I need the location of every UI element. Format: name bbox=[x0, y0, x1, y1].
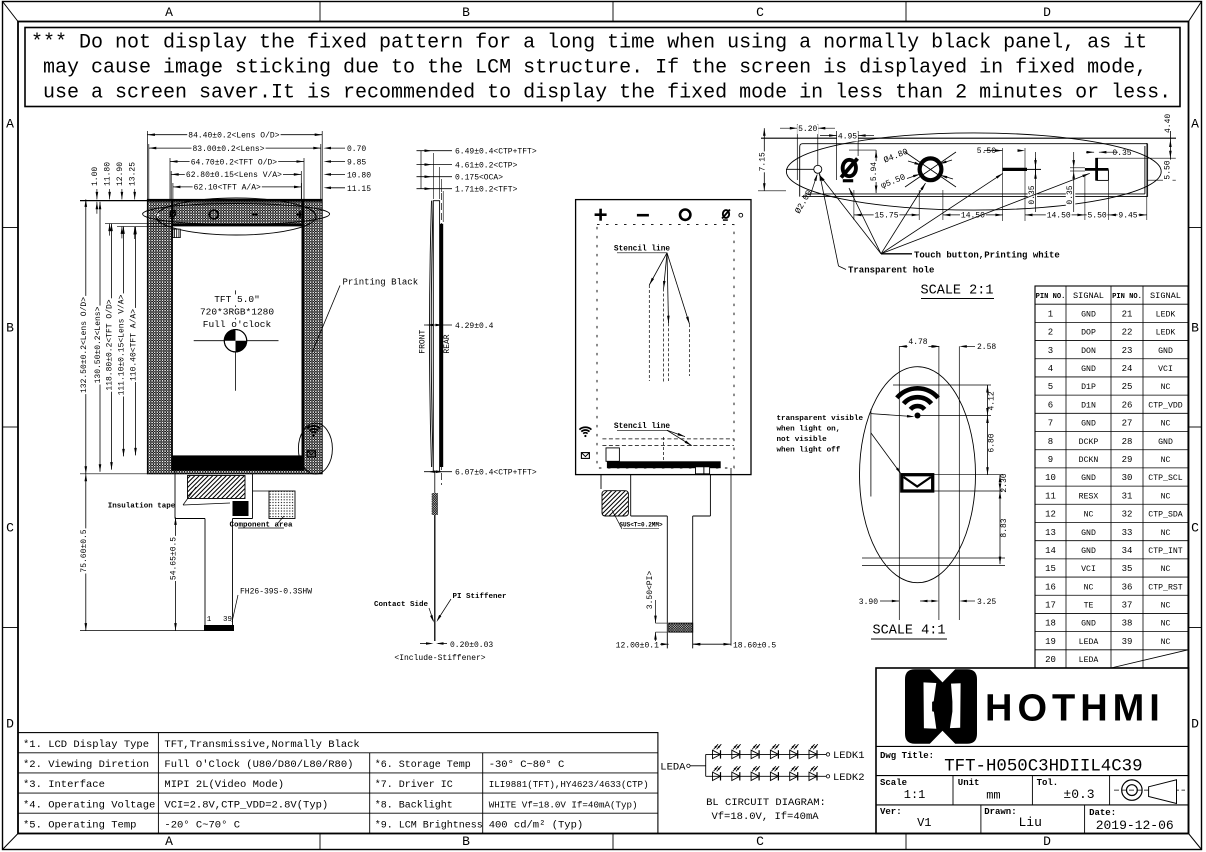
svg-text:DOP: DOP bbox=[1081, 329, 1096, 338]
svg-text:4.29±0.4: 4.29±0.4 bbox=[455, 322, 494, 331]
svg-text:B: B bbox=[6, 321, 14, 336]
svg-text:10: 10 bbox=[1045, 473, 1056, 483]
svg-text:14.50: 14.50 bbox=[961, 212, 985, 221]
svg-text:D: D bbox=[1043, 834, 1051, 849]
svg-text:C: C bbox=[1191, 521, 1199, 536]
svg-text:*6. Storage Temp: *6. Storage Temp bbox=[375, 759, 471, 771]
svg-text:NC: NC bbox=[1161, 602, 1171, 611]
svg-text:NC: NC bbox=[1084, 511, 1094, 520]
svg-text:GND: GND bbox=[1081, 420, 1096, 429]
svg-text:22: 22 bbox=[1122, 328, 1133, 338]
svg-text:D: D bbox=[1191, 717, 1199, 732]
svg-text:4.95: 4.95 bbox=[838, 132, 857, 141]
svg-text:A: A bbox=[165, 5, 173, 20]
svg-text:35: 35 bbox=[1122, 564, 1133, 574]
svg-text:LEDK1: LEDK1 bbox=[833, 750, 865, 762]
svg-text:GND: GND bbox=[1158, 438, 1173, 447]
svg-text:LEDA: LEDA bbox=[660, 762, 686, 774]
svg-text:LEDK: LEDK bbox=[1156, 310, 1176, 319]
svg-text:transparent visible: transparent visible bbox=[777, 415, 864, 423]
svg-text:83.00±0.2<Lens>: 83.00±0.2<Lens> bbox=[192, 145, 264, 154]
svg-text:26: 26 bbox=[1122, 400, 1133, 410]
svg-text:Ver:: Ver: bbox=[880, 807, 902, 817]
svg-text:RESX: RESX bbox=[1079, 492, 1099, 501]
svg-text:Full O'Clock (U80/D80/L80/R80): Full O'Clock (U80/D80/L80/R80) bbox=[164, 759, 353, 771]
svg-text:LEDA: LEDA bbox=[1079, 656, 1099, 665]
svg-text:B: B bbox=[462, 5, 470, 20]
svg-text:4.12: 4.12 bbox=[988, 391, 997, 410]
svg-text:9.45: 9.45 bbox=[1118, 212, 1137, 221]
svg-text:15: 15 bbox=[1045, 564, 1056, 574]
svg-text:*** Do not display the fixed p: *** Do not display the fixed pattern for… bbox=[31, 32, 1147, 55]
svg-text:Insulation tape: Insulation tape bbox=[108, 503, 176, 511]
svg-text:Vf=18.0V, If=40mA: Vf=18.0V, If=40mA bbox=[711, 811, 819, 823]
svg-text:SCALE 2:1: SCALE 2:1 bbox=[921, 284, 994, 299]
svg-text:may cause image sticking due t: may cause image sticking due to the LCM … bbox=[43, 57, 1147, 80]
svg-text:118.80±0.2<TFT O/D>: 118.80±0.2<TFT O/D> bbox=[106, 299, 115, 390]
svg-text:Stencil line: Stencil line bbox=[614, 246, 670, 254]
svg-text:12.00±0.1: 12.00±0.1 bbox=[616, 642, 659, 651]
svg-text:0.20±0.03: 0.20±0.03 bbox=[450, 641, 493, 650]
svg-text:Liu: Liu bbox=[1018, 815, 1041, 830]
svg-text:54.65±0.5: 54.65±0.5 bbox=[170, 537, 179, 580]
svg-text:5.20: 5.20 bbox=[798, 125, 817, 134]
svg-text:20: 20 bbox=[1045, 655, 1056, 665]
svg-text:14.50: 14.50 bbox=[1047, 212, 1071, 221]
svg-text:30: 30 bbox=[1122, 473, 1133, 483]
svg-text:HOTHMI: HOTHMI bbox=[985, 688, 1165, 730]
svg-text:62.10<TFT A/A>: 62.10<TFT A/A> bbox=[194, 184, 261, 193]
svg-text:0.175<OCA>: 0.175<OCA> bbox=[455, 174, 503, 183]
svg-text:1: 1 bbox=[1048, 309, 1053, 319]
svg-text:8: 8 bbox=[1048, 437, 1053, 447]
svg-text:*2. Viewing Diretion: *2. Viewing Diretion bbox=[23, 759, 149, 771]
svg-text:16: 16 bbox=[1045, 582, 1056, 592]
svg-text:13.25: 13.25 bbox=[129, 162, 138, 186]
svg-text:LEDA: LEDA bbox=[1079, 638, 1099, 647]
svg-text:21: 21 bbox=[1122, 309, 1133, 319]
svg-text:ILI9881(TFT),HY4623/4633(CTP): ILI9881(TFT),HY4623/4633(CTP) bbox=[489, 779, 649, 790]
svg-text:Tol.: Tol. bbox=[1037, 778, 1059, 788]
svg-text:not visible: not visible bbox=[777, 436, 828, 444]
svg-text:23: 23 bbox=[1122, 346, 1133, 356]
svg-text:37: 37 bbox=[1122, 601, 1133, 611]
svg-text:24: 24 bbox=[1122, 364, 1133, 374]
svg-text:B: B bbox=[1191, 321, 1199, 336]
svg-text:2.30: 2.30 bbox=[1000, 473, 1009, 492]
svg-text:Date:: Date: bbox=[1089, 808, 1116, 818]
svg-text:GND: GND bbox=[1081, 474, 1096, 483]
svg-text:LEDK: LEDK bbox=[1156, 329, 1176, 338]
svg-text:1.71±0.2<TFT>: 1.71±0.2<TFT> bbox=[455, 186, 518, 195]
svg-text:39: 39 bbox=[223, 616, 232, 624]
svg-text:19: 19 bbox=[1045, 637, 1056, 647]
svg-text:3.50<PI>: 3.50<PI> bbox=[646, 571, 655, 610]
svg-text:GND: GND bbox=[1081, 620, 1096, 629]
svg-text:5.50: 5.50 bbox=[1087, 212, 1106, 221]
svg-text:5.94: 5.94 bbox=[870, 162, 879, 181]
svg-text:Transparent hole: Transparent hole bbox=[848, 266, 934, 276]
svg-text:400 cd/m² (Typ): 400 cd/m² (Typ) bbox=[489, 819, 584, 831]
svg-text:36: 36 bbox=[1122, 582, 1133, 592]
svg-text:4.40: 4.40 bbox=[1164, 114, 1173, 133]
svg-text:84.40±0.2<Lens O/D>: 84.40±0.2<Lens O/D> bbox=[188, 132, 279, 141]
svg-text:NC: NC bbox=[1161, 638, 1171, 647]
svg-text:TFT,Transmissive,Normally Blac: TFT,Transmissive,Normally Black bbox=[164, 739, 359, 751]
svg-text:13: 13 bbox=[1045, 528, 1056, 538]
svg-text:132.50±0.2<Lens O/D>: 132.50±0.2<Lens O/D> bbox=[80, 297, 89, 393]
svg-text:SUS<T=0.2MM>: SUS<T=0.2MM> bbox=[619, 522, 663, 529]
svg-text:CTP_SCL: CTP_SCL bbox=[1148, 474, 1182, 483]
svg-text:2: 2 bbox=[1048, 328, 1053, 338]
svg-text:Scale: Scale bbox=[880, 778, 907, 788]
svg-text:D: D bbox=[1043, 5, 1051, 20]
svg-text:*3. Interface: *3. Interface bbox=[23, 779, 105, 791]
svg-text:1: 1 bbox=[207, 616, 212, 624]
svg-text:5.50: 5.50 bbox=[977, 147, 996, 156]
svg-text:8.83: 8.83 bbox=[1000, 518, 1009, 537]
svg-text:38: 38 bbox=[1122, 619, 1133, 629]
svg-text:CTP_SDA: CTP_SDA bbox=[1148, 511, 1182, 520]
svg-text:75.60±0.5: 75.60±0.5 bbox=[80, 529, 89, 572]
svg-text:32: 32 bbox=[1122, 510, 1133, 520]
svg-text:17: 17 bbox=[1045, 601, 1056, 611]
svg-text:TFT-H050C3HDIIL4C39: TFT-H050C3HDIIL4C39 bbox=[944, 758, 1142, 777]
svg-text:GND: GND bbox=[1081, 529, 1096, 538]
svg-text:Drawn:: Drawn: bbox=[984, 807, 1016, 817]
svg-text:18: 18 bbox=[1045, 619, 1056, 629]
svg-text:C: C bbox=[756, 834, 764, 849]
svg-text:130.50±0.2<Lens>: 130.50±0.2<Lens> bbox=[94, 306, 103, 383]
svg-text:6: 6 bbox=[1048, 400, 1053, 410]
svg-text:33: 33 bbox=[1122, 528, 1133, 538]
svg-text:V1: V1 bbox=[917, 816, 931, 830]
svg-text:mm: mm bbox=[986, 789, 1000, 803]
svg-text:GND: GND bbox=[1081, 310, 1096, 319]
svg-text:B: B bbox=[462, 834, 470, 849]
svg-text:5.50: 5.50 bbox=[1163, 160, 1172, 179]
svg-text:34: 34 bbox=[1122, 546, 1133, 556]
svg-text:Full o'clock: Full o'clock bbox=[203, 319, 272, 330]
svg-text:D1N: D1N bbox=[1081, 401, 1096, 410]
svg-text:Stencil line: Stencil line bbox=[614, 423, 670, 431]
svg-text:WHITE Vf=18.0V If=40mA(Typ): WHITE Vf=18.0V If=40mA(Typ) bbox=[489, 799, 638, 810]
svg-text:DCKP: DCKP bbox=[1079, 438, 1099, 447]
svg-text:-30° C~80° C: -30° C~80° C bbox=[489, 759, 565, 771]
svg-text:NC: NC bbox=[1161, 565, 1171, 574]
svg-text:*7. Driver IC: *7. Driver IC bbox=[375, 779, 453, 791]
svg-text:SIGNAL: SIGNAL bbox=[1073, 291, 1104, 301]
svg-text:NC: NC bbox=[1161, 456, 1171, 465]
svg-text:CTP_RST: CTP_RST bbox=[1148, 583, 1182, 592]
svg-text:PIN NO.: PIN NO. bbox=[1112, 293, 1142, 301]
svg-text:NC: NC bbox=[1161, 383, 1171, 392]
svg-text:VCI=2.8V,CTP_VDD=2.8V(Typ): VCI=2.8V,CTP_VDD=2.8V(Typ) bbox=[164, 799, 328, 811]
svg-text:6.07±0.4<CTP+TFT>: 6.07±0.4<CTP+TFT> bbox=[455, 469, 537, 478]
svg-text:SIGNAL: SIGNAL bbox=[1150, 291, 1181, 301]
svg-text:7.15: 7.15 bbox=[758, 152, 767, 171]
svg-text:11: 11 bbox=[1045, 491, 1056, 501]
svg-text:3.90: 3.90 bbox=[859, 598, 878, 607]
svg-text:A: A bbox=[6, 117, 14, 132]
svg-text:62.80±0.15<Lens V/A>: 62.80±0.15<Lens V/A> bbox=[186, 171, 282, 180]
svg-text:2.58: 2.58 bbox=[977, 343, 996, 352]
svg-text:*5. Operating Temp: *5. Operating Temp bbox=[23, 819, 136, 831]
svg-text:SCALE 4:1: SCALE 4:1 bbox=[873, 624, 946, 639]
svg-text:when light on,: when light on, bbox=[777, 426, 841, 434]
svg-text:6.49±0.4<CTP+TFT>: 6.49±0.4<CTP+TFT> bbox=[455, 148, 537, 157]
svg-text:A: A bbox=[165, 834, 173, 849]
svg-text:TE: TE bbox=[1084, 602, 1094, 611]
svg-text:GND: GND bbox=[1081, 365, 1096, 374]
svg-text:111.10±0.15<Lens V/A>: 111.10±0.15<Lens V/A> bbox=[118, 294, 127, 395]
svg-text:31: 31 bbox=[1122, 491, 1133, 501]
svg-text:FRONT: FRONT bbox=[419, 330, 428, 354]
svg-text:9: 9 bbox=[1048, 455, 1053, 465]
svg-text:15.75: 15.75 bbox=[874, 212, 898, 221]
svg-text:12: 12 bbox=[1045, 510, 1056, 520]
svg-text:NC: NC bbox=[1161, 492, 1171, 501]
svg-text:PI Stiffener: PI Stiffener bbox=[453, 593, 507, 601]
svg-text:D: D bbox=[6, 717, 14, 732]
svg-text:27: 27 bbox=[1122, 419, 1133, 429]
svg-text:C: C bbox=[756, 5, 764, 20]
svg-text:GND: GND bbox=[1081, 547, 1096, 556]
svg-text:64.70±0.2<TFT O/D>: 64.70±0.2<TFT O/D> bbox=[191, 158, 278, 167]
svg-text:Ø4.80: Ø4.80 bbox=[882, 147, 909, 166]
svg-text:39: 39 bbox=[1122, 637, 1133, 647]
svg-text:0.35: 0.35 bbox=[1112, 149, 1131, 158]
svg-text:φ5.50: φ5.50 bbox=[880, 172, 907, 191]
svg-text:2019-12-06: 2019-12-06 bbox=[1096, 818, 1174, 833]
svg-text:Dwg Title:: Dwg Title: bbox=[880, 751, 934, 761]
svg-text:BL CIRCUIT DIAGRAM:: BL CIRCUIT DIAGRAM: bbox=[706, 797, 826, 809]
svg-text:GND: GND bbox=[1158, 347, 1173, 356]
svg-text:FH26-39S-0.3SHW: FH26-39S-0.3SHW bbox=[240, 588, 312, 597]
svg-text:MIPI 2L(Video Mode): MIPI 2L(Video Mode) bbox=[164, 779, 284, 791]
svg-text:PIN NO.: PIN NO. bbox=[1036, 293, 1066, 301]
svg-text:4.78: 4.78 bbox=[908, 338, 927, 347]
svg-text:0.70: 0.70 bbox=[347, 145, 366, 154]
svg-text:25: 25 bbox=[1122, 382, 1133, 392]
svg-text:NC: NC bbox=[1161, 529, 1171, 538]
svg-text:6.80: 6.80 bbox=[988, 433, 997, 452]
svg-text:720*3RGB*1280: 720*3RGB*1280 bbox=[200, 307, 274, 318]
svg-text:4.61±0.2<CTP>: 4.61±0.2<CTP> bbox=[455, 161, 518, 170]
svg-text:NC: NC bbox=[1084, 583, 1094, 592]
svg-text:28: 28 bbox=[1122, 437, 1133, 447]
svg-text:DON: DON bbox=[1081, 347, 1096, 356]
svg-text:11.15: 11.15 bbox=[347, 185, 371, 194]
svg-text:9.85: 9.85 bbox=[347, 159, 366, 168]
svg-text:12.90: 12.90 bbox=[116, 162, 125, 186]
svg-text:Unit: Unit bbox=[958, 778, 980, 788]
svg-text:A: A bbox=[1191, 117, 1199, 132]
svg-text:*9. LCM Brightness: *9. LCM Brightness bbox=[375, 819, 483, 831]
svg-text:1.00: 1.00 bbox=[91, 167, 100, 186]
svg-text:18.60±0.5: 18.60±0.5 bbox=[733, 642, 776, 651]
svg-text:TFT 5.0": TFT 5.0" bbox=[214, 294, 260, 305]
svg-text:LEDK2: LEDK2 bbox=[833, 772, 865, 784]
svg-text:C: C bbox=[6, 521, 14, 536]
svg-text:11.80: 11.80 bbox=[104, 162, 113, 186]
svg-text:7: 7 bbox=[1048, 419, 1053, 429]
svg-text:VCI: VCI bbox=[1158, 365, 1173, 374]
svg-text:4: 4 bbox=[1048, 364, 1053, 374]
svg-text:D1P: D1P bbox=[1081, 383, 1096, 392]
svg-text:CTP_INT: CTP_INT bbox=[1148, 547, 1182, 556]
svg-text:VCI: VCI bbox=[1081, 565, 1096, 574]
svg-text:<Include-Stiffener>: <Include-Stiffener> bbox=[394, 654, 485, 663]
svg-text:-20° C~70° C: -20° C~70° C bbox=[164, 819, 240, 831]
svg-text:1:1: 1:1 bbox=[904, 788, 926, 802]
svg-text:NC: NC bbox=[1161, 620, 1171, 629]
svg-text:3: 3 bbox=[1048, 346, 1053, 356]
svg-text:REAR: REAR bbox=[443, 334, 452, 353]
svg-text:14: 14 bbox=[1045, 546, 1056, 556]
svg-text:Contact Side: Contact Side bbox=[374, 601, 429, 609]
svg-text:Printing Black: Printing Black bbox=[343, 278, 419, 288]
svg-text:3.25: 3.25 bbox=[977, 598, 996, 607]
svg-text:NC: NC bbox=[1161, 420, 1171, 429]
svg-text:5: 5 bbox=[1048, 382, 1053, 392]
svg-text:±0.3: ±0.3 bbox=[1063, 787, 1094, 802]
svg-text:DCKN: DCKN bbox=[1079, 456, 1099, 465]
svg-text:use a screen saver.It is recom: use a screen saver.It is recommended to … bbox=[43, 82, 1171, 105]
svg-text:10.80: 10.80 bbox=[347, 171, 371, 180]
svg-text:*1. LCD Display Type: *1. LCD Display Type bbox=[23, 739, 149, 751]
svg-text:when light off: when light off bbox=[777, 447, 841, 455]
svg-text:29: 29 bbox=[1122, 455, 1133, 465]
svg-text:*8. Backlight: *8. Backlight bbox=[375, 799, 453, 811]
svg-text:*4. Operating Voltage: *4. Operating Voltage bbox=[23, 799, 155, 811]
svg-text:CTP_VDD: CTP_VDD bbox=[1148, 401, 1182, 410]
svg-text:110.40<TFT A/A>: 110.40<TFT A/A> bbox=[130, 309, 139, 381]
svg-text:Touch button,Printing white: Touch button,Printing white bbox=[914, 250, 1060, 260]
